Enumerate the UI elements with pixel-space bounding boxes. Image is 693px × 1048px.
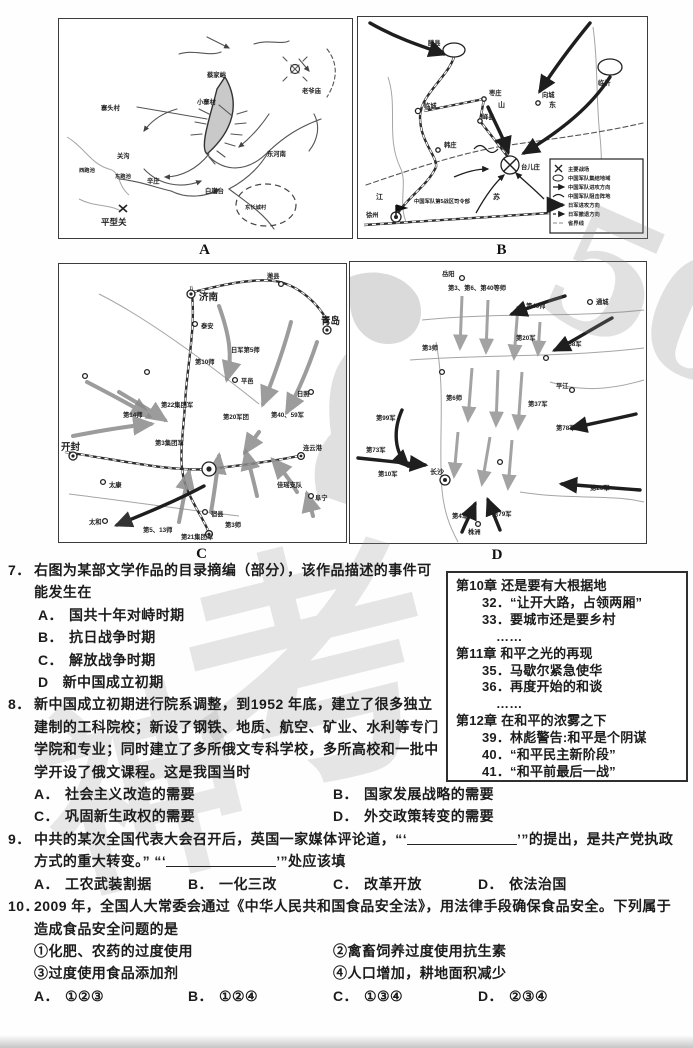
question-number: 9． xyxy=(8,828,34,850)
map-label: 平型关 xyxy=(101,217,127,227)
troop-ellipse xyxy=(443,43,465,57)
map-label: 滕县 xyxy=(428,38,441,47)
fill-blank xyxy=(166,853,276,867)
question-10: 10． 2009 年，全国人大常委会通过《中华人民共和国食品安全法》，用法律手段… xyxy=(8,895,686,1007)
option-text: 巩固新生政权的需要 xyxy=(65,808,195,824)
question-stem: 右图为某部文学作品的目录摘编（部分），该作品描述的事件可能发生在 xyxy=(34,559,440,604)
option-d: D新中国成立初期 xyxy=(34,671,686,693)
option-b: B．国家发展战略的需要 xyxy=(333,783,686,805)
option-label: D． xyxy=(333,808,364,824)
map-label: 第10师 xyxy=(195,357,215,366)
option-text: ①②③ xyxy=(65,988,104,1004)
exam-page: 蔡家峪 老爷庙 寨头村 小寨村 关沟 辛庄 白崖台 东河南 西跑池 东跑池 平型… xyxy=(0,0,693,1048)
map-label: 韩庄 xyxy=(444,140,457,149)
map-label: 第20军 xyxy=(516,333,536,342)
map-label: 佳瑶支队 xyxy=(277,480,303,489)
map-label: 第73军 xyxy=(366,445,386,454)
battle-x-symbol xyxy=(119,205,127,212)
option-label: A． xyxy=(34,786,65,802)
map-label: 东跑池 xyxy=(115,172,132,180)
option-label: D xyxy=(38,674,63,690)
option-text: 外交政策转变的需要 xyxy=(364,808,494,824)
map-label: 宿县 xyxy=(211,509,224,518)
option-label: A． xyxy=(34,876,65,892)
map-label-province: 山东 xyxy=(498,100,600,109)
option-label: C． xyxy=(333,876,364,892)
page-edge-shadow xyxy=(0,1035,693,1048)
lake-dongting xyxy=(350,273,421,344)
option-c: C．解放战争时期 xyxy=(34,649,686,671)
map-label: 通城 xyxy=(596,297,609,306)
map-label: 平邑 xyxy=(241,376,254,385)
map-label: 东长城村 xyxy=(245,203,267,211)
map-label: 关沟 xyxy=(117,151,130,160)
question-9: 9． 中共的某次全国代表大会召开后，英国一家媒体评论道，“‘’”的提出，是共产党… xyxy=(8,828,686,895)
map-label: 临沂 xyxy=(598,78,611,87)
option-text: 抗日战争时期 xyxy=(69,629,156,645)
map-label: 第5、13师 xyxy=(143,525,173,534)
map-label: 第6师 xyxy=(446,393,463,402)
map-label: 向城 xyxy=(542,90,555,99)
legend-item: 日军撤退方向 xyxy=(568,210,600,218)
option-label: B． xyxy=(188,876,219,892)
map-label: 徐州 xyxy=(365,210,379,219)
map-label: 辛庄 xyxy=(147,176,160,185)
figure-b-caption: B xyxy=(357,242,646,259)
option-b: B．一化三改 xyxy=(188,873,333,895)
map-label: 第3集团军 xyxy=(155,438,184,447)
map-label: 太康 xyxy=(109,480,122,489)
option-label: A． xyxy=(34,988,65,1004)
map-label: 寨头村 xyxy=(101,103,121,112)
figure-b-map: 滕县 临城 枣庄 峄县 韩庄 台儿庄 向城 临沂 山东 江苏 徐州 中国军队第5… xyxy=(357,16,648,239)
map-label: 第3师 xyxy=(225,520,242,529)
map-label: 连云港 xyxy=(303,443,323,452)
map-label: 青岛 xyxy=(321,315,340,327)
legend-item: 中国军队集结地域 xyxy=(568,174,611,182)
option-d: D．②③④ xyxy=(478,985,686,1007)
option-text: 新中国成立初期 xyxy=(63,674,164,690)
option-label: A． xyxy=(38,607,69,623)
option-text: 依法治国 xyxy=(509,876,567,892)
map-label: 泰安 xyxy=(201,321,214,330)
map-label: 第20军团 xyxy=(223,412,249,421)
map-label: 济南 xyxy=(199,291,219,303)
option-label: B． xyxy=(38,629,69,645)
figure-d: 岳阳 通城 第3、第6、第40等师 第40师 第20军 第58军 第3师 第6师… xyxy=(349,261,645,564)
option-a: A．工农武装割据 xyxy=(34,873,188,895)
stem-text: 中共的某次全国代表大会召开后，英国一家媒体评论道，“‘ xyxy=(34,831,407,847)
map-label: 第40师 xyxy=(526,301,546,310)
figure-b: 滕县 临城 枣庄 峄县 韩庄 台儿庄 向城 临沂 山东 江苏 徐州 中国军队第5… xyxy=(357,16,646,259)
map-label: 第78军 xyxy=(556,423,576,432)
legend-item: 中国军队进攻方向 xyxy=(568,183,610,191)
option-text: 一化三改 xyxy=(219,876,277,892)
option-text: ①②④ xyxy=(219,988,258,1004)
option-d: D．依法治国 xyxy=(478,873,686,895)
map-label: 老爷庙 xyxy=(302,86,322,95)
questions-section: 7． 右图为某部文学作品的目录摘编（部分），该作品描述的事件可能发生在 A．国共… xyxy=(8,559,686,1007)
option-b: B．①②④ xyxy=(188,985,333,1007)
question-7: 7． 右图为某部文学作品的目录摘编（部分），该作品描述的事件可能发生在 A．国共… xyxy=(8,559,686,693)
map-label: 中国军队第5战区司令部 xyxy=(414,197,471,205)
coastline xyxy=(315,354,346,504)
option-a: A．国共十年对峙时期 xyxy=(34,604,686,626)
map-label: 岳阳 xyxy=(442,269,455,278)
option-text: 解放战争时期 xyxy=(69,652,156,668)
option-c: C．巩固新生政权的需要 xyxy=(34,805,333,827)
map-label: 第26军 xyxy=(590,483,610,492)
map-label: 第79军 xyxy=(492,509,512,518)
option-a: A．①②③ xyxy=(34,985,188,1007)
map-label: 第22集团军 xyxy=(161,400,193,409)
option-b: B．抗日战争时期 xyxy=(34,626,686,648)
legend-item: 日军进攻方向 xyxy=(568,201,600,209)
map-label: 开封 xyxy=(61,441,81,453)
stem-item-4: ④人口增加，耕地面积减少 xyxy=(333,962,686,984)
option-text: ②③④ xyxy=(509,988,548,1004)
map-label: 东河南 xyxy=(267,149,287,158)
figure-a: 蔡家峪 老爷庙 寨头村 小寨村 关沟 辛庄 白崖台 东河南 西跑池 东跑池 平型… xyxy=(58,18,351,259)
map-label: 日军第5师 xyxy=(231,345,260,354)
map-label: 白崖台 xyxy=(205,186,224,195)
map-label: 第37军 xyxy=(528,399,548,408)
map-label: 西跑池 xyxy=(79,166,96,174)
map-label: 小寨村 xyxy=(196,97,217,106)
option-text: 国家发展战略的需要 xyxy=(364,786,494,802)
question-stem: 中共的某次全国代表大会召开后，英国一家媒体评论道，“‘’”的提出，是共产党执政方… xyxy=(34,828,678,873)
figure-c-map: 济南 泰安 潍县 青岛 日军第5师 第10师 平邑 日照 第22集团军 第20军… xyxy=(58,263,347,543)
legend-item: 中国军队阻击阵地 xyxy=(568,192,611,200)
map-label: 第14师 xyxy=(123,410,143,419)
option-d: D．外交政策转变的需要 xyxy=(333,805,686,827)
map-label: 临城 xyxy=(424,101,437,110)
map-label: 株洲 xyxy=(468,527,481,536)
map-label: 阜宁 xyxy=(315,493,328,502)
stem-item-1: ①化肥、农药的过度使用 xyxy=(34,940,333,962)
map-label: 第58军 xyxy=(562,339,582,348)
stem-item-3: ③过度使用食品添加剂 xyxy=(34,962,333,984)
question-stem: 2009 年，全国人大常委会通过《中华人民共和国食品安全法》，用法律手段确保食品… xyxy=(34,895,682,940)
figure-c: 济南 泰安 潍县 青岛 日军第5师 第10师 平邑 日照 第22集团军 第20军… xyxy=(58,263,345,563)
map-label: 第99军 xyxy=(376,413,396,422)
map-label: 第4军 xyxy=(452,511,468,520)
figure-a-caption: A xyxy=(58,242,351,259)
option-label: C． xyxy=(333,988,364,1004)
map-label: 第21集团军 xyxy=(181,532,213,541)
stem-text: ’”处应该填 xyxy=(276,853,346,869)
option-text: 社会主义改造的需要 xyxy=(65,786,195,802)
option-label: C． xyxy=(34,808,65,824)
option-a: A．社会主义改造的需要 xyxy=(34,783,333,805)
figure-d-map: 岳阳 通城 第3、第6、第40等师 第40师 第20军 第58军 第3师 第6师… xyxy=(349,261,647,544)
option-text: 国共十年对峙时期 xyxy=(69,607,185,623)
map-label: 枣庄 xyxy=(488,88,502,97)
question-stem: 新中国成立初期进行院系调整，到1952 年底，建立了很多独立建制的工科院校；新设… xyxy=(34,693,440,783)
map-label: 第10军 xyxy=(378,469,398,478)
option-c: C．改革开放 xyxy=(333,873,478,895)
troop-ellipse xyxy=(598,59,622,75)
option-text: 工农武装割据 xyxy=(65,876,152,892)
map-label: 平江 xyxy=(556,381,569,390)
map-legend: 主要战场 中国军队集结地域 中国军队进攻方向 中国军队阻击阵地 日军进攻方向 日… xyxy=(550,159,643,233)
option-text: ①③④ xyxy=(364,988,403,1004)
map-label: 潍县 xyxy=(267,271,280,280)
question-8: 8． 新中国成立初期进行院系调整，到1952 年底，建立了很多独立建制的工科院校… xyxy=(8,693,686,827)
map-label: 峄县 xyxy=(482,112,495,121)
legend-item: 省界线 xyxy=(567,219,585,227)
map-label: 蔡家峪 xyxy=(206,70,227,79)
question-number: 8． xyxy=(8,693,34,715)
question-number: 10． xyxy=(8,895,34,917)
option-label: C． xyxy=(38,652,69,668)
map-label: 第3师 xyxy=(422,343,439,352)
stem-item-2: ②禽畜饲养过度使用抗生素 xyxy=(333,940,686,962)
option-c: C．①③④ xyxy=(333,985,478,1007)
question-number: 7． xyxy=(8,559,34,581)
map-label: 日照 xyxy=(297,389,310,398)
option-text: 改革开放 xyxy=(364,876,422,892)
figure-a-map: 蔡家峪 老爷庙 寨头村 小寨村 关沟 辛庄 白崖台 东河南 西跑池 东跑池 平型… xyxy=(58,18,353,239)
option-label: D． xyxy=(478,876,509,892)
map-label: 太和 xyxy=(89,517,102,526)
map-label: 第3、第6、第40等师 xyxy=(448,283,507,292)
option-label: D． xyxy=(478,988,509,1004)
gully-shape xyxy=(204,77,233,154)
map-label: 第40、59军 xyxy=(271,410,304,419)
fill-blank xyxy=(407,831,517,845)
option-label: B． xyxy=(333,786,364,802)
map-label: 台儿庄 xyxy=(521,162,541,171)
map-label: 长沙 xyxy=(430,467,444,476)
option-label: B． xyxy=(188,988,219,1004)
legend-item: 主要战场 xyxy=(568,165,590,173)
